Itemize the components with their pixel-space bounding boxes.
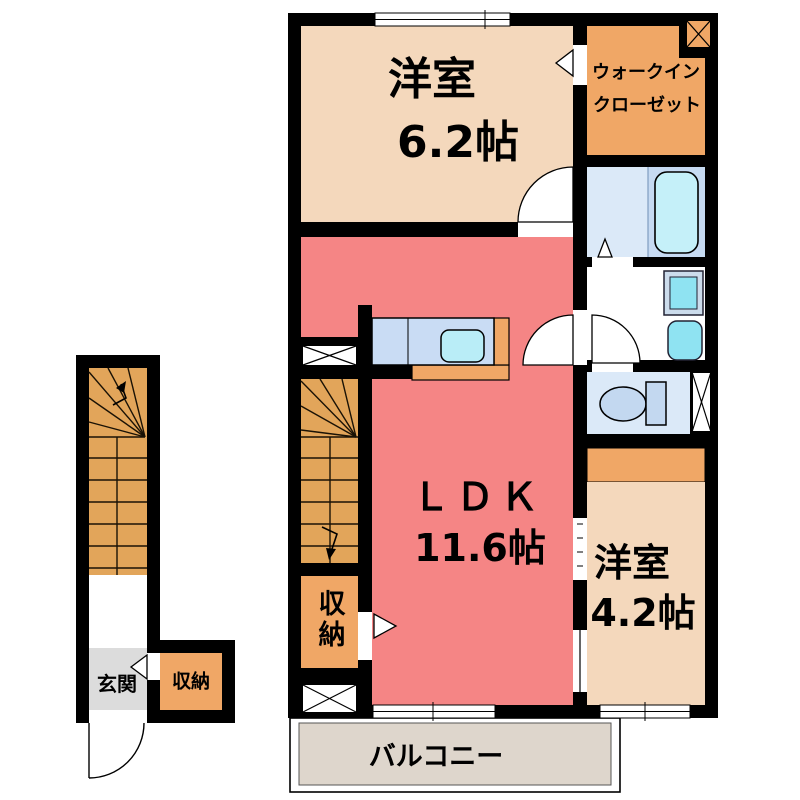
- washbasin: [668, 321, 702, 360]
- bathtub: [655, 172, 698, 253]
- bedroom2-closet-floor: [587, 448, 705, 482]
- bedroom1-window: [375, 10, 510, 29]
- balcony-label: バルコニー: [369, 744, 503, 771]
- wic-label-line1: ウォークイン: [592, 64, 700, 82]
- bedroom2-window: [600, 702, 690, 721]
- washroom-door-gap: [573, 310, 587, 365]
- bedroom1-area: 6.2帖: [397, 121, 519, 165]
- exterior-stair-block: [76, 355, 235, 778]
- exterior-staircase: [89, 368, 147, 575]
- stair-landing: [89, 575, 147, 648]
- ldk-window: [373, 702, 495, 721]
- kitchen-sink: [441, 330, 484, 362]
- ldk-area: 11.6帖: [414, 529, 546, 567]
- unit-storage-label: 収納: [316, 589, 343, 651]
- unit-storage-door-gap: [358, 612, 372, 660]
- entrance-storage-door-gap: [147, 653, 160, 680]
- entrance-door-gap: [89, 710, 147, 723]
- bedroom2-area: 4.2帖: [590, 594, 695, 632]
- wic-door-gap: [573, 45, 587, 85]
- bath-door-gap: [592, 257, 633, 267]
- toilet-side-shaft: [692, 372, 711, 432]
- washing-machine: [664, 271, 703, 315]
- bedroom1-label: 洋室: [388, 58, 476, 102]
- internal-staircase: [301, 379, 372, 575]
- front-door-swing: [89, 723, 144, 778]
- kitchen-side-shaft: [301, 337, 372, 379]
- bedroom2-label: 洋室: [594, 544, 670, 582]
- entrance-label: 玄関: [97, 674, 137, 694]
- ldk-label: ＬＤＫ: [412, 478, 544, 516]
- entrance-storage-label: 収納: [172, 673, 210, 692]
- wic-label-line2: クローゼット: [593, 97, 701, 115]
- bedroom1-door-gap: [518, 222, 573, 237]
- bedroom2-door-gap: [573, 518, 587, 580]
- floorplan-page: 洋室 6.2帖 ウォークイン クローゼット ＬＤＫ 11.6帖 洋室 4.2帖 …: [0, 0, 800, 800]
- wic-corner-shaft: [679, 13, 718, 58]
